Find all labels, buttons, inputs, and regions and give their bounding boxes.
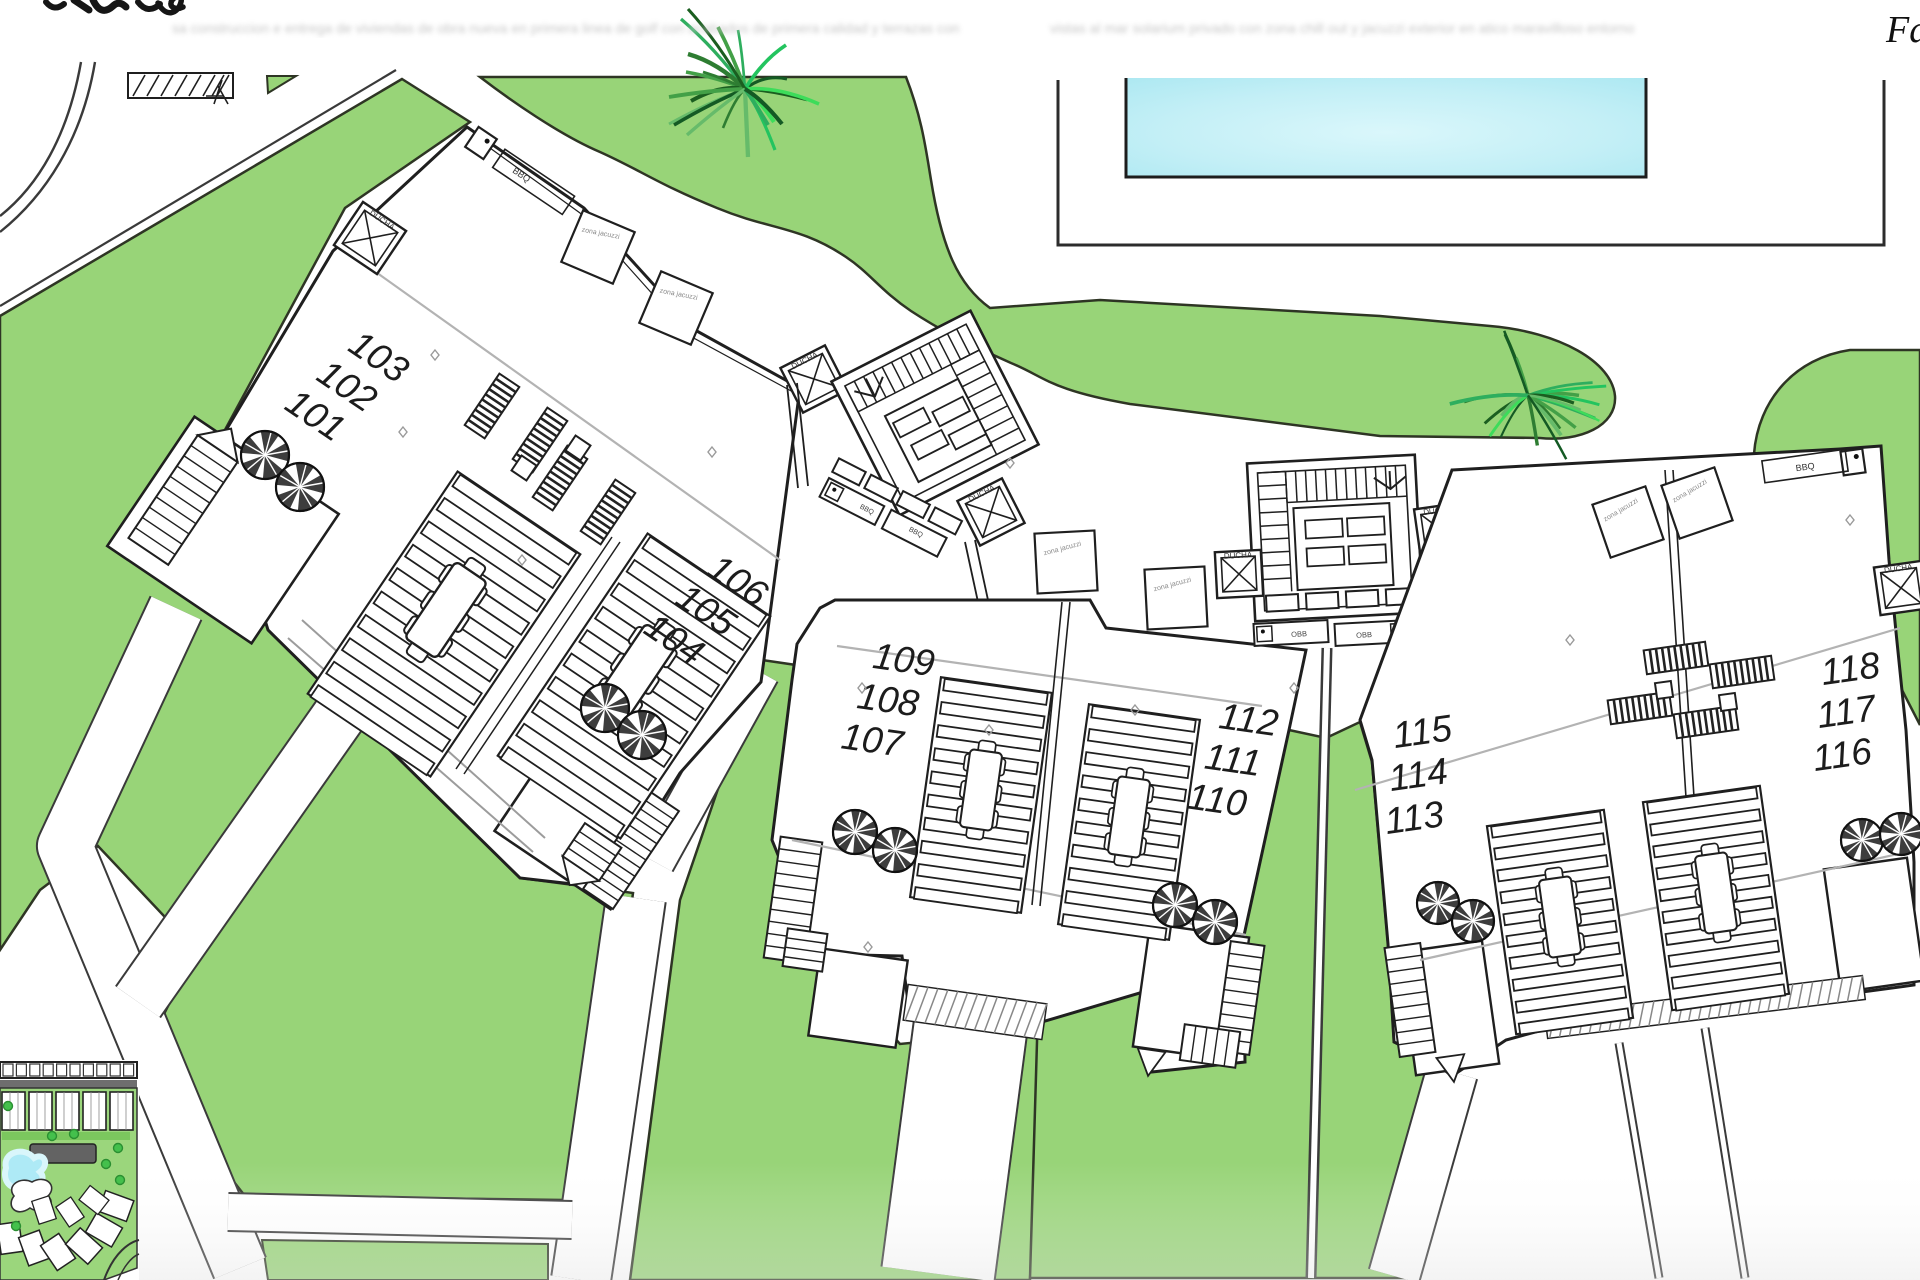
svg-text:vistas al mar solarium privado: vistas al mar solarium privado con zona … [1050, 20, 1635, 36]
svg-text:113: 113 [1382, 793, 1447, 842]
svg-text:116: 116 [1810, 730, 1875, 779]
svg-text:117: 117 [1814, 687, 1880, 736]
svg-text:118: 118 [1818, 644, 1883, 693]
svg-text:110: 110 [1185, 776, 1250, 825]
svg-text:sa construccion e entrega de v: sa construccion e entrega de viviendas d… [172, 20, 960, 36]
svg-text:107: 107 [839, 715, 907, 764]
svg-text:112: 112 [1217, 695, 1282, 744]
svg-text:OBB: OBB [1291, 629, 1307, 639]
svg-text:Fas: Fas [1885, 9, 1920, 51]
svg-text:DUCHA: DUCHA [1224, 550, 1254, 561]
svg-text:114: 114 [1386, 750, 1450, 799]
svg-text:109: 109 [870, 635, 937, 684]
svg-text:OBB: OBB [1356, 630, 1372, 640]
svg-text:115: 115 [1390, 707, 1455, 756]
svg-text:108: 108 [855, 675, 922, 724]
svg-text:111: 111 [1202, 736, 1263, 784]
